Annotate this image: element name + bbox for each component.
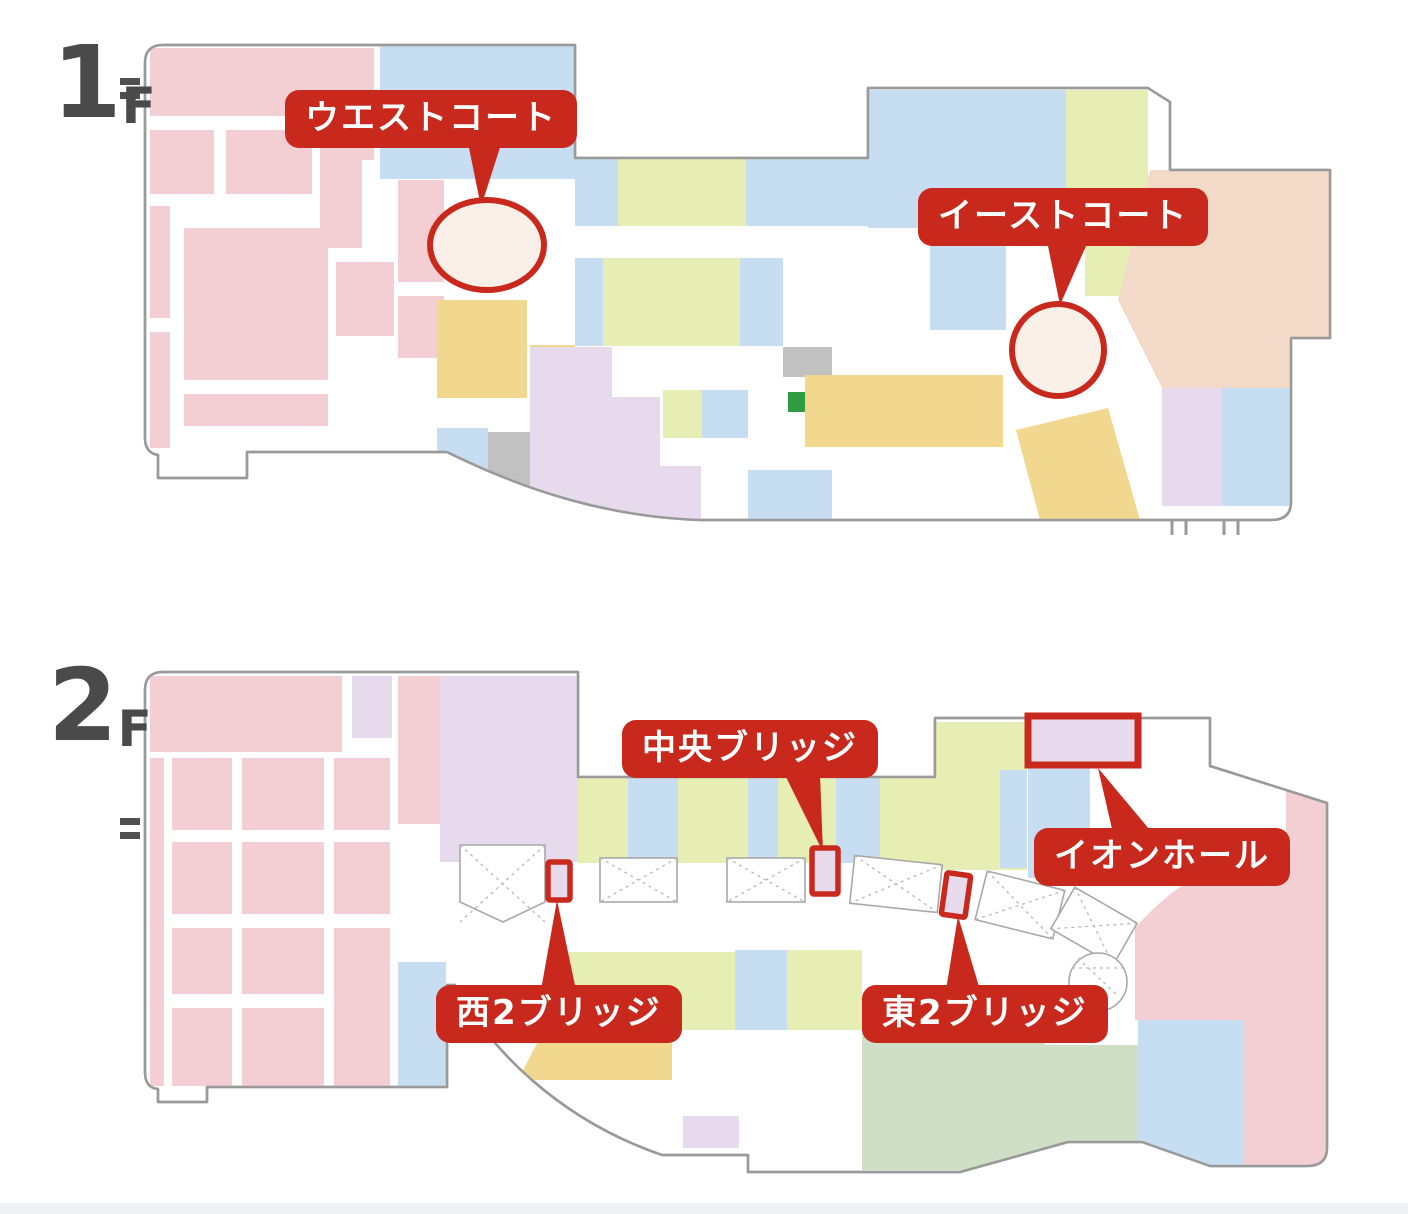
label-east-court: イーストコート [918,188,1208,246]
west-entrance-mark-2f [120,832,140,839]
floor-1f-suffix: F [122,81,156,131]
label-east2-bridge: 東2ブリッジ [862,985,1108,1043]
aeon-hall-marker [1028,716,1138,765]
floor-2f-suffix: F [118,704,152,754]
label-aeon-hall: イオンホール [1034,828,1290,886]
label-west2-bridge: 西2ブリッジ [436,985,682,1043]
bottom-strip [0,1203,1408,1214]
floor-1f-number: 1 [52,33,118,133]
floor-1f-label: 1 F [52,33,156,133]
floor-2f-number: 2 [48,656,114,756]
label-west-court: ウエストコート [285,90,577,148]
west2-bridge-marker [548,862,570,900]
central-bridge-marker [812,848,838,894]
floor-2f-label: 2 F [48,656,152,756]
east-court-circle [1012,304,1104,396]
mall-floor-maps: 1 F 2 F ウエストコート イーストコート 中央ブリッジ イオンホール 西2… [0,0,1408,1214]
east2-bridge-marker [941,873,971,918]
label-central-bridge: 中央ブリッジ [622,720,878,778]
west-entrance-mark-2f [120,818,140,825]
west-court-ellipse [430,200,544,290]
mall-map-graphic [0,0,1408,1214]
